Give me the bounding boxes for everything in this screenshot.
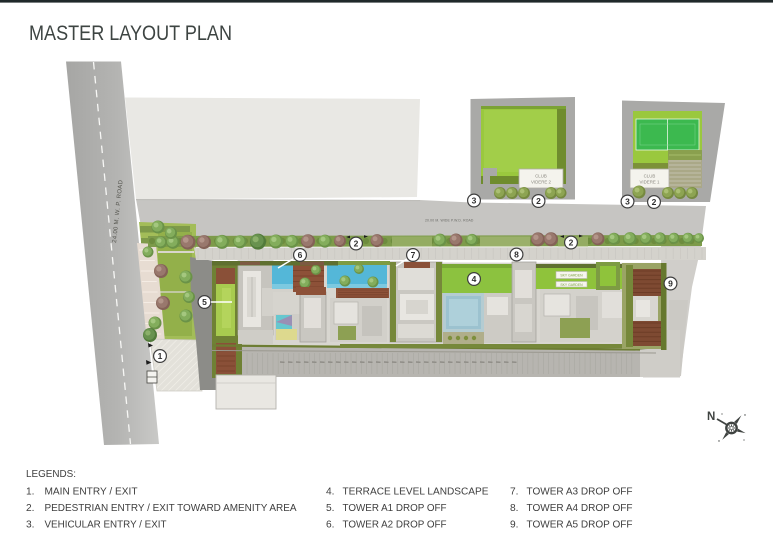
svg-text:5.: 5.	[326, 503, 335, 514]
svg-text:TOWER A4 DROP OFF: TOWER A4 DROP OFF	[527, 503, 633, 514]
svg-text:1: 1	[158, 351, 163, 361]
svg-text:2.: 2.	[26, 503, 35, 514]
svg-text:5: 5	[202, 297, 207, 307]
svg-text:2: 2	[652, 197, 657, 207]
svg-text:8: 8	[514, 250, 519, 260]
svg-text:2: 2	[536, 196, 541, 206]
svg-text:7: 7	[411, 250, 416, 260]
svg-text:3: 3	[472, 196, 477, 206]
svg-text:9: 9	[668, 279, 673, 289]
svg-text:6.: 6.	[326, 520, 335, 531]
svg-text:TOWER A3 DROP OFF: TOWER A3 DROP OFF	[527, 487, 633, 498]
svg-text:3: 3	[625, 197, 630, 207]
svg-text:20.00 M. WIDE P.W.D. ROAD: 20.00 M. WIDE P.W.D. ROAD	[425, 219, 474, 223]
svg-text:4.: 4.	[326, 487, 335, 498]
svg-text:6: 6	[298, 250, 303, 260]
svg-text:VEHICULAR ENTRY / EXIT: VEHICULAR ENTRY / EXIT	[45, 520, 167, 531]
svg-text:CLUB: CLUB	[644, 174, 656, 179]
svg-text:LEGENDS:: LEGENDS:	[26, 469, 76, 480]
svg-text:CLUB: CLUB	[535, 174, 547, 179]
svg-text:9.: 9.	[510, 520, 519, 531]
svg-text:3.: 3.	[26, 520, 35, 531]
svg-text:1.: 1.	[26, 487, 35, 498]
svg-text:SKY GARDEN: SKY GARDEN	[560, 283, 583, 287]
svg-text:N: N	[707, 411, 715, 423]
svg-text:TOWER A2 DROP OFF: TOWER A2 DROP OFF	[343, 520, 447, 531]
svg-text:SKY GARDEN: SKY GARDEN	[560, 274, 583, 278]
svg-text:2: 2	[569, 238, 574, 248]
svg-text:8.: 8.	[510, 503, 519, 514]
svg-text:7.: 7.	[510, 487, 519, 498]
svg-text:MASTER LAYOUT PLAN: MASTER LAYOUT PLAN	[29, 20, 232, 45]
svg-text:MAIN ENTRY / EXIT: MAIN ENTRY / EXIT	[45, 487, 138, 498]
svg-text:TOWER A1 DROP OFF: TOWER A1 DROP OFF	[343, 503, 447, 514]
svg-text:TOWER A5 DROP OFF: TOWER A5 DROP OFF	[527, 520, 633, 531]
svg-text:VIDERE 1: VIDERE 1	[639, 180, 660, 185]
svg-text:2: 2	[354, 239, 359, 249]
svg-text:PEDESTRIAN ENTRY / EXIT TOWARD: PEDESTRIAN ENTRY / EXIT TOWARD AMENITY A…	[45, 503, 297, 514]
svg-text:4: 4	[472, 274, 477, 284]
svg-text:TERRACE LEVEL LANDSCAPE: TERRACE LEVEL LANDSCAPE	[343, 487, 489, 498]
svg-text:VIDERE 2: VIDERE 2	[531, 180, 552, 185]
